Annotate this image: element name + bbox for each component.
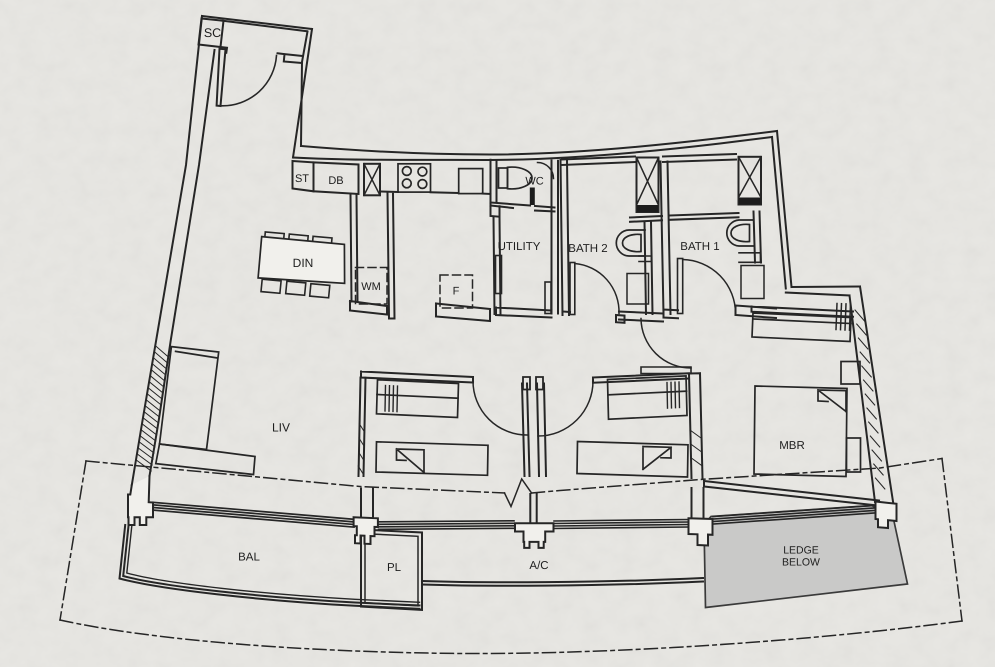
svg-text:A/C: A/C bbox=[529, 560, 548, 572]
svg-text:LEDGE: LEDGE bbox=[783, 545, 819, 557]
svg-text:BATH 1: BATH 1 bbox=[680, 241, 719, 253]
svg-text:F: F bbox=[453, 286, 460, 298]
svg-text:BATH 2: BATH 2 bbox=[568, 243, 607, 255]
svg-text:DIN: DIN bbox=[293, 256, 314, 270]
svg-text:ST: ST bbox=[295, 173, 309, 185]
svg-text:UTILITY: UTILITY bbox=[498, 241, 541, 253]
svg-text:LIV: LIV bbox=[272, 421, 290, 435]
svg-text:WM: WM bbox=[361, 281, 381, 293]
svg-text:DB: DB bbox=[328, 175, 343, 187]
svg-text:MBR: MBR bbox=[779, 440, 805, 452]
svg-text:BAL: BAL bbox=[238, 552, 260, 564]
svg-text:PL: PL bbox=[387, 562, 402, 574]
svg-text:SC: SC bbox=[204, 26, 221, 40]
svg-text:BELOW: BELOW bbox=[782, 557, 820, 569]
svg-text:WC: WC bbox=[525, 176, 543, 188]
